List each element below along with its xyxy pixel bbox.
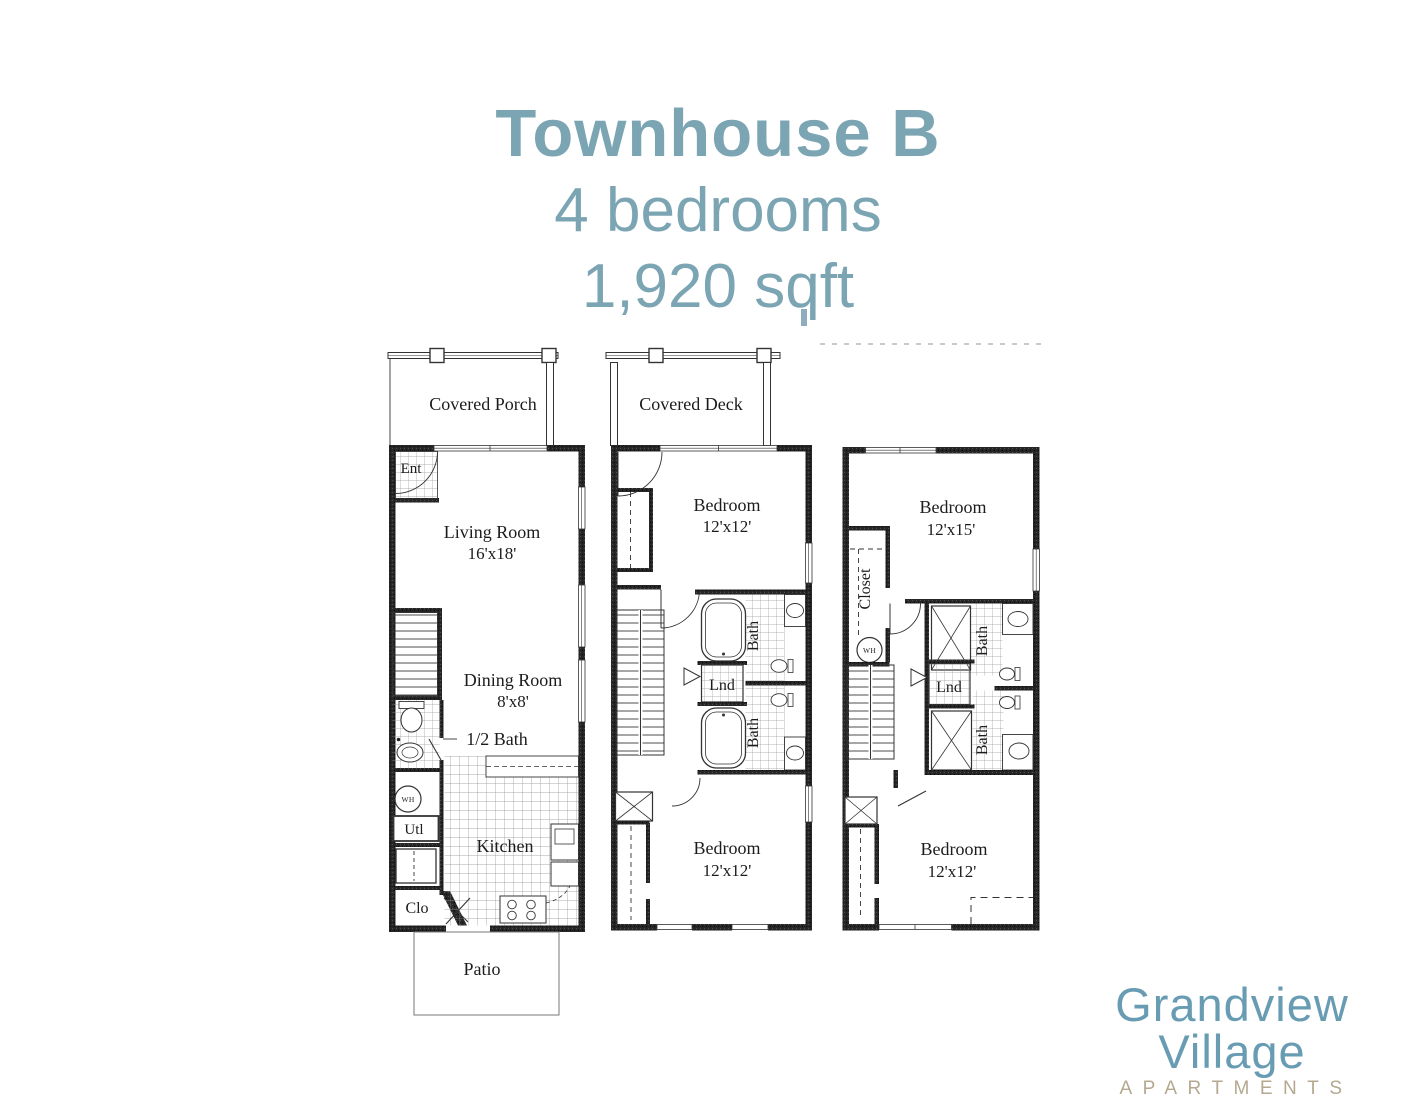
laundry-label: Lnd bbox=[709, 677, 735, 694]
door-arc bbox=[890, 604, 921, 635]
bathtub-icon bbox=[702, 599, 746, 661]
brand-name: Grandview Village bbox=[1050, 981, 1414, 1075]
closet-label: Closet bbox=[857, 568, 874, 609]
dining-room-label: Dining Room bbox=[464, 670, 563, 690]
floor2-plan: Covered Deck Bedroom 12'x12' bbox=[600, 345, 815, 935]
floor3-water-heater: WH bbox=[847, 638, 890, 667]
floor1-utility: Utl bbox=[394, 816, 439, 841]
brand-subtitle: APARTMENTS bbox=[1050, 1078, 1414, 1100]
decorative-dashed-line bbox=[820, 343, 1046, 345]
toilet-icon bbox=[1000, 697, 1015, 709]
door-leaf bbox=[898, 791, 926, 806]
deck-post bbox=[757, 349, 771, 363]
bath-upper-label: Bath bbox=[974, 626, 991, 656]
water-heater-label: WH bbox=[863, 646, 876, 655]
porch-label: Covered Porch bbox=[429, 394, 536, 414]
square-footage: 1,920 sqft bbox=[8, 256, 1426, 318]
bedroom-upper-label: Bedroom bbox=[920, 497, 987, 517]
bedroom-lower-label: Bedroom bbox=[694, 838, 761, 858]
appliance bbox=[551, 862, 579, 886]
bedroom-upper-label: Bedroom bbox=[694, 495, 761, 515]
bath-upper-label: Bath bbox=[745, 621, 762, 651]
floor1-plan: Covered Porch Ent Living Room bbox=[385, 345, 590, 1017]
toilet-icon bbox=[1000, 668, 1015, 680]
deck-label: Covered Deck bbox=[639, 394, 742, 414]
entry-label: Ent bbox=[401, 461, 423, 477]
utility-label: Utl bbox=[404, 822, 423, 838]
bedroom-count: 4 bedrooms bbox=[8, 180, 1426, 242]
half-bath-label: 1/2 Bath bbox=[466, 729, 528, 749]
sink-icon bbox=[397, 743, 423, 762]
bedroom-lower-dims: 12'x12' bbox=[928, 862, 977, 881]
toilet-icon bbox=[771, 694, 787, 707]
sink-icon bbox=[1008, 612, 1028, 627]
sink-icon bbox=[787, 746, 804, 760]
toilet-icon bbox=[771, 660, 787, 673]
bedroom-lower-label: Bedroom bbox=[921, 839, 988, 859]
floor3-stairs bbox=[847, 665, 894, 759]
bedroom-upper-dims: 12'x15' bbox=[927, 520, 976, 539]
brand-logo: Grandview Village APARTMENTS bbox=[1050, 981, 1414, 1100]
bedroom-lower-dims: 12'x12' bbox=[703, 861, 752, 880]
toilet-icon bbox=[401, 708, 422, 732]
floor1-closet-box bbox=[396, 849, 436, 883]
floor2-bedroom-lower bbox=[616, 792, 653, 924]
porch-post bbox=[542, 349, 556, 363]
floor3-bedroom-lower bbox=[845, 797, 1033, 924]
floor2-stairs bbox=[617, 610, 664, 755]
stove-icon bbox=[500, 896, 546, 923]
page-title: Townhouse B bbox=[8, 100, 1426, 167]
floor1-patio: Patio bbox=[414, 932, 559, 1015]
door-arc bbox=[672, 778, 700, 806]
clo-label: Clo bbox=[405, 900, 428, 917]
bath-lower-label: Bath bbox=[745, 718, 762, 748]
counter bbox=[486, 756, 579, 777]
water-heater-label: WH bbox=[401, 795, 414, 804]
floor3-plan: Bedroom 12'x15' Closet WH Bath bbox=[840, 440, 1045, 935]
living-room-label: Living Room bbox=[444, 522, 541, 542]
bath-lower-label: Bath bbox=[974, 725, 991, 755]
floor1-entry: Ent bbox=[396, 452, 438, 499]
laundry-label: Lnd bbox=[936, 679, 962, 696]
door-arc bbox=[661, 590, 700, 629]
kitchen-label: Kitchen bbox=[477, 836, 534, 856]
sink-icon bbox=[1009, 743, 1029, 759]
bathtub-icon bbox=[702, 708, 746, 768]
bedroom-upper-dims: 12'x12' bbox=[703, 517, 752, 536]
toilet-tank-icon bbox=[399, 702, 424, 709]
deck-post bbox=[649, 349, 663, 363]
porch-post bbox=[430, 349, 444, 363]
floor1-water-heater: WH bbox=[395, 786, 421, 812]
patio-label: Patio bbox=[463, 959, 500, 979]
living-room-dims: 16'x18' bbox=[468, 544, 517, 563]
door-wedge bbox=[684, 668, 700, 685]
decorative-blue-tick bbox=[801, 309, 807, 326]
sink-icon bbox=[787, 604, 804, 618]
dining-room-dims: 8'x8' bbox=[497, 692, 529, 711]
floor1-stairs bbox=[393, 613, 438, 697]
title-block: Townhouse B 4 bedrooms 1,920 sqft bbox=[8, 100, 1426, 318]
